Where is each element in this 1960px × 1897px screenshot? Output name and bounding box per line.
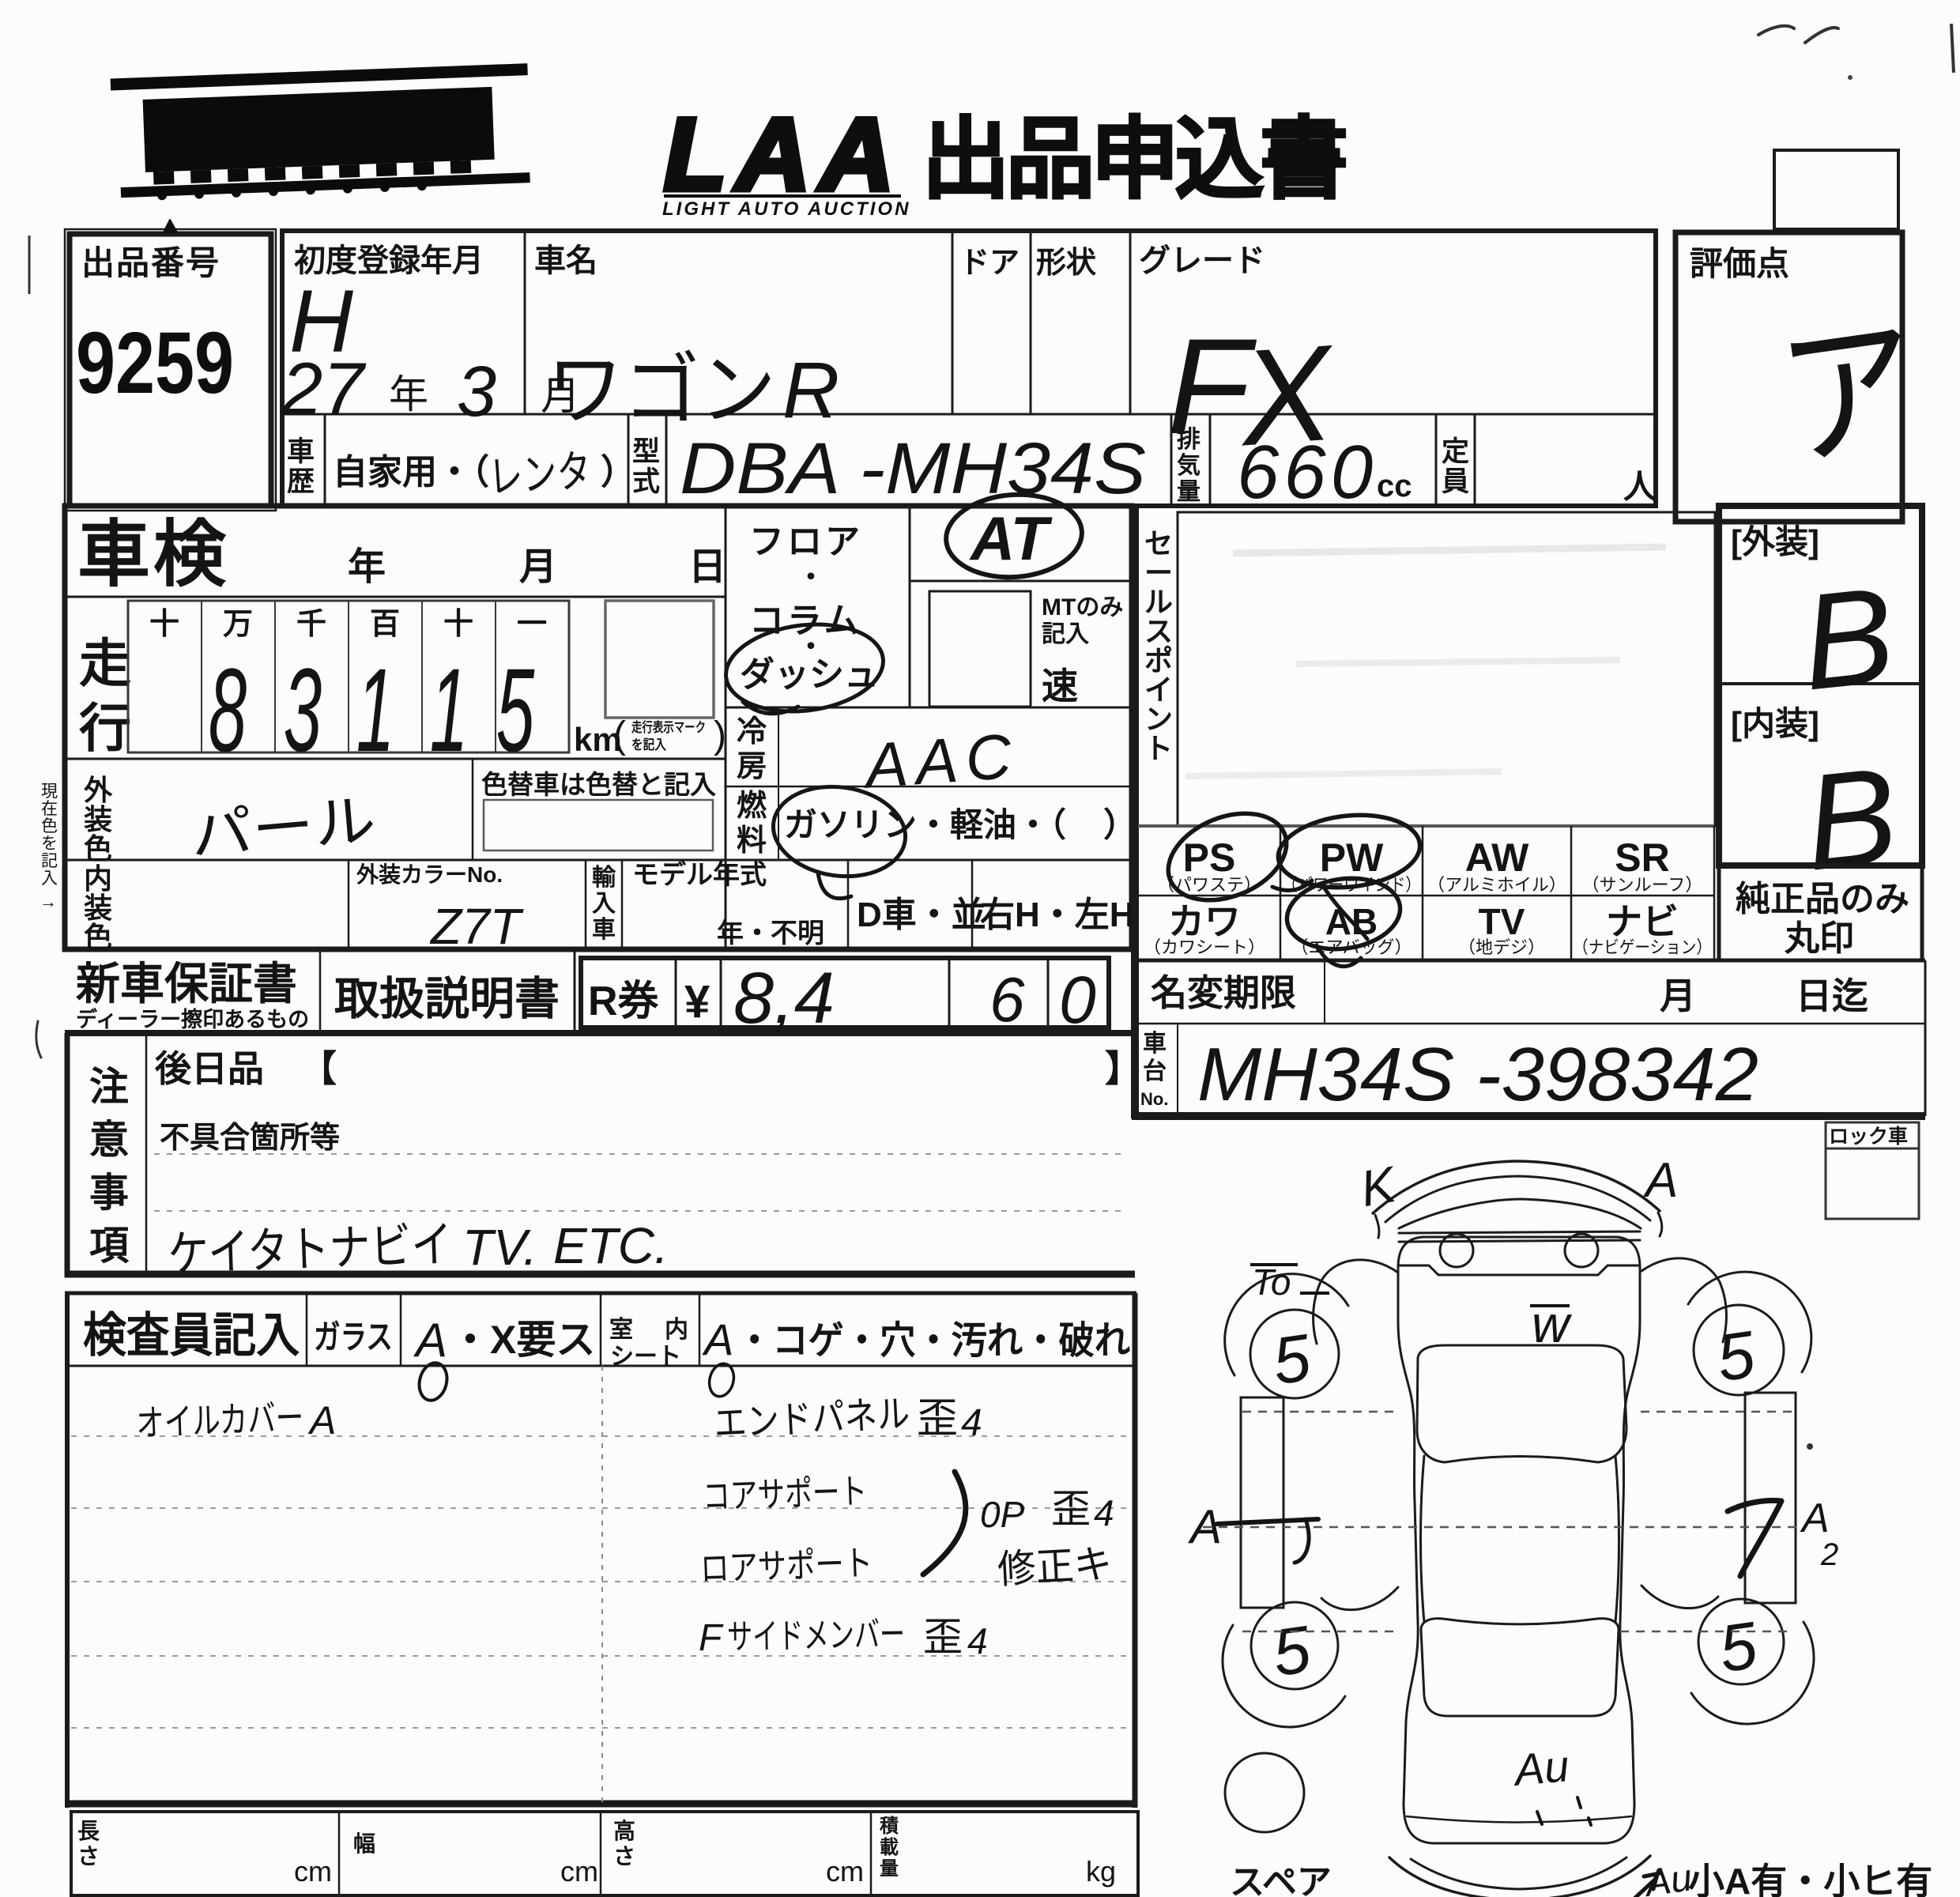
svg-text:千: 千 bbox=[296, 599, 326, 643]
svg-text:万: 万 bbox=[223, 599, 253, 643]
svg-text:→: → bbox=[40, 888, 57, 913]
svg-text:修正キ: 修正キ bbox=[996, 1532, 1114, 1594]
svg-text:・コゲ・穴・汚れ・破れ: ・コゲ・穴・汚れ・破れ bbox=[737, 1309, 1130, 1364]
svg-text:ト: ト bbox=[1144, 726, 1173, 767]
svg-text:(: ( bbox=[613, 715, 626, 756]
svg-text:kg: kg bbox=[1086, 1855, 1116, 1888]
svg-text:房: 房 bbox=[737, 741, 767, 785]
svg-text:3: 3 bbox=[284, 643, 322, 776]
svg-text:8,4: 8,4 bbox=[733, 958, 835, 1039]
svg-text:日: 日 bbox=[688, 535, 726, 590]
svg-text:Z7T: Z7T bbox=[429, 898, 524, 955]
svg-text:9259: 9259 bbox=[76, 315, 234, 412]
svg-text:MH34S -398342: MH34S -398342 bbox=[1197, 1032, 1758, 1117]
svg-text:）: ） bbox=[601, 443, 635, 494]
svg-text:4: 4 bbox=[1094, 1492, 1114, 1533]
svg-text:DBA -MH34S: DBA -MH34S bbox=[680, 428, 1146, 509]
svg-text:年: 年 bbox=[389, 363, 428, 420]
svg-text:月: 月 bbox=[519, 535, 557, 590]
svg-text:A: A bbox=[1188, 1500, 1222, 1553]
svg-text:オイルカバー: オイルカバー bbox=[135, 1389, 304, 1446]
svg-text:ガソリン・軽油・（: ガソリン・軽油・（ bbox=[784, 798, 1066, 847]
svg-text:百: 百 bbox=[370, 599, 400, 643]
svg-text:No.: No. bbox=[1140, 1089, 1168, 1109]
svg-text:さ: さ bbox=[613, 1839, 635, 1871]
svg-text:量: 量 bbox=[1177, 472, 1200, 507]
svg-text:ワゴン: ワゴン bbox=[547, 326, 776, 440]
svg-text:cm: cm bbox=[826, 1855, 864, 1888]
svg-text:スペア: スペア bbox=[1230, 1854, 1332, 1897]
svg-text:一: 一 bbox=[517, 599, 547, 643]
svg-text:ケイタトナビイ: ケイタトナビイ bbox=[167, 1205, 454, 1286]
svg-text:27: 27 bbox=[281, 347, 367, 430]
svg-text:丸印: 丸印 bbox=[1784, 910, 1854, 960]
svg-text:5: 5 bbox=[496, 643, 535, 776]
svg-text:日迄: 日迄 bbox=[1796, 967, 1868, 1020]
svg-text:1: 1 bbox=[356, 643, 394, 776]
svg-text:歪: 歪 bbox=[917, 1385, 958, 1444]
svg-text:グレード: グレード bbox=[1139, 235, 1265, 281]
svg-text:2: 2 bbox=[1820, 1537, 1838, 1572]
svg-text:エンドパネル: エンドパネル bbox=[712, 1382, 910, 1448]
svg-text:意: 意 bbox=[89, 1108, 129, 1165]
svg-text:4: 4 bbox=[961, 1402, 982, 1444]
svg-text:】: 】 bbox=[1105, 1040, 1141, 1092]
svg-text:Au: Au bbox=[1510, 1740, 1571, 1795]
svg-text:事: 事 bbox=[89, 1161, 129, 1218]
svg-text:料: 料 bbox=[737, 816, 767, 859]
svg-text:（アルミホイル）: （アルミホイル） bbox=[1427, 871, 1566, 896]
svg-text:A: A bbox=[1800, 1495, 1830, 1541]
svg-text:レンタ: レンタ bbox=[486, 436, 593, 507]
svg-text:R券: R券 bbox=[588, 967, 659, 1027]
svg-text:A: A bbox=[1642, 1153, 1678, 1208]
svg-text:シート: シート bbox=[610, 1337, 681, 1371]
svg-text:項: 項 bbox=[89, 1214, 130, 1271]
svg-text:員: 員 bbox=[1442, 459, 1469, 500]
svg-text:1: 1 bbox=[430, 643, 468, 776]
svg-text:出品申込書: 出品申込書 bbox=[922, 88, 1345, 216]
svg-text:量: 量 bbox=[880, 1853, 899, 1880]
svg-text:・: ・ bbox=[797, 554, 825, 595]
svg-text:注: 注 bbox=[89, 1055, 129, 1112]
svg-text:ロアサポート: ロアサポート bbox=[699, 1534, 873, 1591]
svg-text:台: 台 bbox=[1143, 1051, 1167, 1086]
svg-text:歴: 歴 bbox=[287, 459, 315, 500]
svg-text:[外装]: [外装] bbox=[1731, 515, 1819, 564]
svg-text:B: B bbox=[1795, 559, 1901, 719]
svg-text:（カワシート）: （カワシート） bbox=[1144, 933, 1265, 959]
svg-text:年・不明: 年・不明 bbox=[717, 911, 824, 950]
svg-text:取扱説明書: 取扱説明書 bbox=[334, 963, 560, 1028]
svg-text:): ) bbox=[714, 715, 726, 756]
svg-text:小A有・小ヒ有: 小A有・小ヒ有 bbox=[1688, 1853, 1932, 1897]
svg-text:w: w bbox=[1532, 1295, 1573, 1353]
svg-text:外装カラーNo.: 外装カラーNo. bbox=[356, 858, 503, 889]
svg-text:ディーラー擦印あるもの: ディーラー擦印あるもの bbox=[76, 1002, 309, 1033]
svg-text:R: R bbox=[782, 346, 839, 435]
svg-text:cm: cm bbox=[294, 1855, 332, 1888]
svg-text:名変期限: 名変期限 bbox=[1151, 964, 1296, 1016]
svg-text:評価点: 評価点 bbox=[1690, 237, 1789, 285]
svg-text:車: 車 bbox=[592, 910, 616, 945]
svg-text:（ナビゲーション）: （ナビゲーション） bbox=[1573, 933, 1712, 959]
svg-text:車名: 車名 bbox=[534, 235, 597, 281]
svg-text:¥: ¥ bbox=[684, 976, 710, 1028]
svg-text:cc: cc bbox=[1377, 469, 1412, 503]
svg-text:3: 3 bbox=[457, 353, 496, 432]
svg-text:十: 十 bbox=[149, 599, 179, 643]
svg-text:【: 【 bbox=[300, 1040, 337, 1092]
svg-text:サイドメンバー: サイドメンバー bbox=[727, 1605, 906, 1659]
svg-text:ドア: ドア bbox=[959, 238, 1020, 281]
svg-text:後日品: 後日品 bbox=[154, 1040, 264, 1092]
svg-text:6: 6 bbox=[989, 964, 1025, 1035]
svg-text:To: To bbox=[1252, 1262, 1291, 1303]
svg-text:A: A bbox=[413, 1314, 447, 1367]
svg-text:色替車は色替と記入: 色替車は色替と記入 bbox=[481, 764, 716, 801]
svg-text:（地デジ）: （地デジ） bbox=[1458, 933, 1545, 959]
svg-text:歪: 歪 bbox=[923, 1605, 963, 1662]
svg-text:A: A bbox=[307, 1398, 336, 1443]
svg-text:年: 年 bbox=[348, 535, 386, 590]
svg-text:AT: AT bbox=[969, 503, 1053, 573]
svg-text:0P: 0P bbox=[980, 1494, 1025, 1535]
svg-text:cm: cm bbox=[560, 1855, 598, 1888]
svg-text:・X要ス: ・X要ス bbox=[450, 1308, 595, 1365]
svg-text:0: 0 bbox=[1059, 963, 1096, 1037]
svg-text:幅: 幅 bbox=[353, 1827, 375, 1858]
svg-text:十: 十 bbox=[443, 599, 473, 643]
svg-text:検査員記入: 検査員記入 bbox=[83, 1297, 300, 1366]
svg-text:LIGHT AUTO AUCTION: LIGHT AUTO AUCTION bbox=[662, 198, 910, 220]
svg-text:不具合箇所等: 不具合箇所等 bbox=[160, 1113, 340, 1156]
svg-text:を記入: を記入 bbox=[631, 734, 666, 753]
svg-text:660: 660 bbox=[1237, 430, 1378, 515]
svg-text:TV.: TV. bbox=[462, 1219, 537, 1276]
svg-text:[内装]: [内装] bbox=[1731, 697, 1819, 745]
svg-text:月: 月 bbox=[1660, 967, 1696, 1020]
svg-text:右H・左H: 右H・左H bbox=[980, 886, 1135, 937]
svg-text:入: 入 bbox=[41, 866, 58, 889]
svg-text:車検: 車検 bbox=[77, 496, 229, 601]
svg-text:4: 4 bbox=[967, 1620, 988, 1661]
svg-text:コアサポート: コアサポート bbox=[702, 1463, 868, 1519]
svg-text:歪: 歪 bbox=[1051, 1477, 1091, 1534]
svg-text:行: 行 bbox=[79, 686, 131, 762]
svg-text:ロック車: ロック車 bbox=[1829, 1121, 1908, 1149]
svg-text:出品番号: 出品番号 bbox=[81, 236, 220, 285]
svg-text:式: 式 bbox=[632, 459, 660, 500]
svg-text:パール: パール bbox=[187, 773, 379, 872]
svg-text:人: 人 bbox=[1623, 460, 1657, 508]
svg-text:形状: 形状 bbox=[1036, 238, 1097, 281]
svg-text:ガラス: ガラス bbox=[314, 1311, 393, 1359]
svg-text:ETC.: ETC. bbox=[553, 1217, 669, 1274]
svg-text:AAC: AAC bbox=[860, 720, 1021, 801]
svg-text:さ: さ bbox=[77, 1839, 100, 1871]
svg-text:8: 8 bbox=[209, 643, 247, 776]
svg-text:F: F bbox=[699, 1617, 724, 1659]
svg-text:記入: 記入 bbox=[1042, 614, 1089, 649]
svg-text:A: A bbox=[702, 1314, 733, 1364]
svg-text:ダッシュ: ダッシュ bbox=[740, 646, 879, 696]
svg-text:速: 速 bbox=[1042, 658, 1078, 710]
svg-text:自家用・（: 自家用・（ bbox=[333, 443, 489, 494]
svg-text:D車・並: D車・並 bbox=[857, 886, 986, 937]
